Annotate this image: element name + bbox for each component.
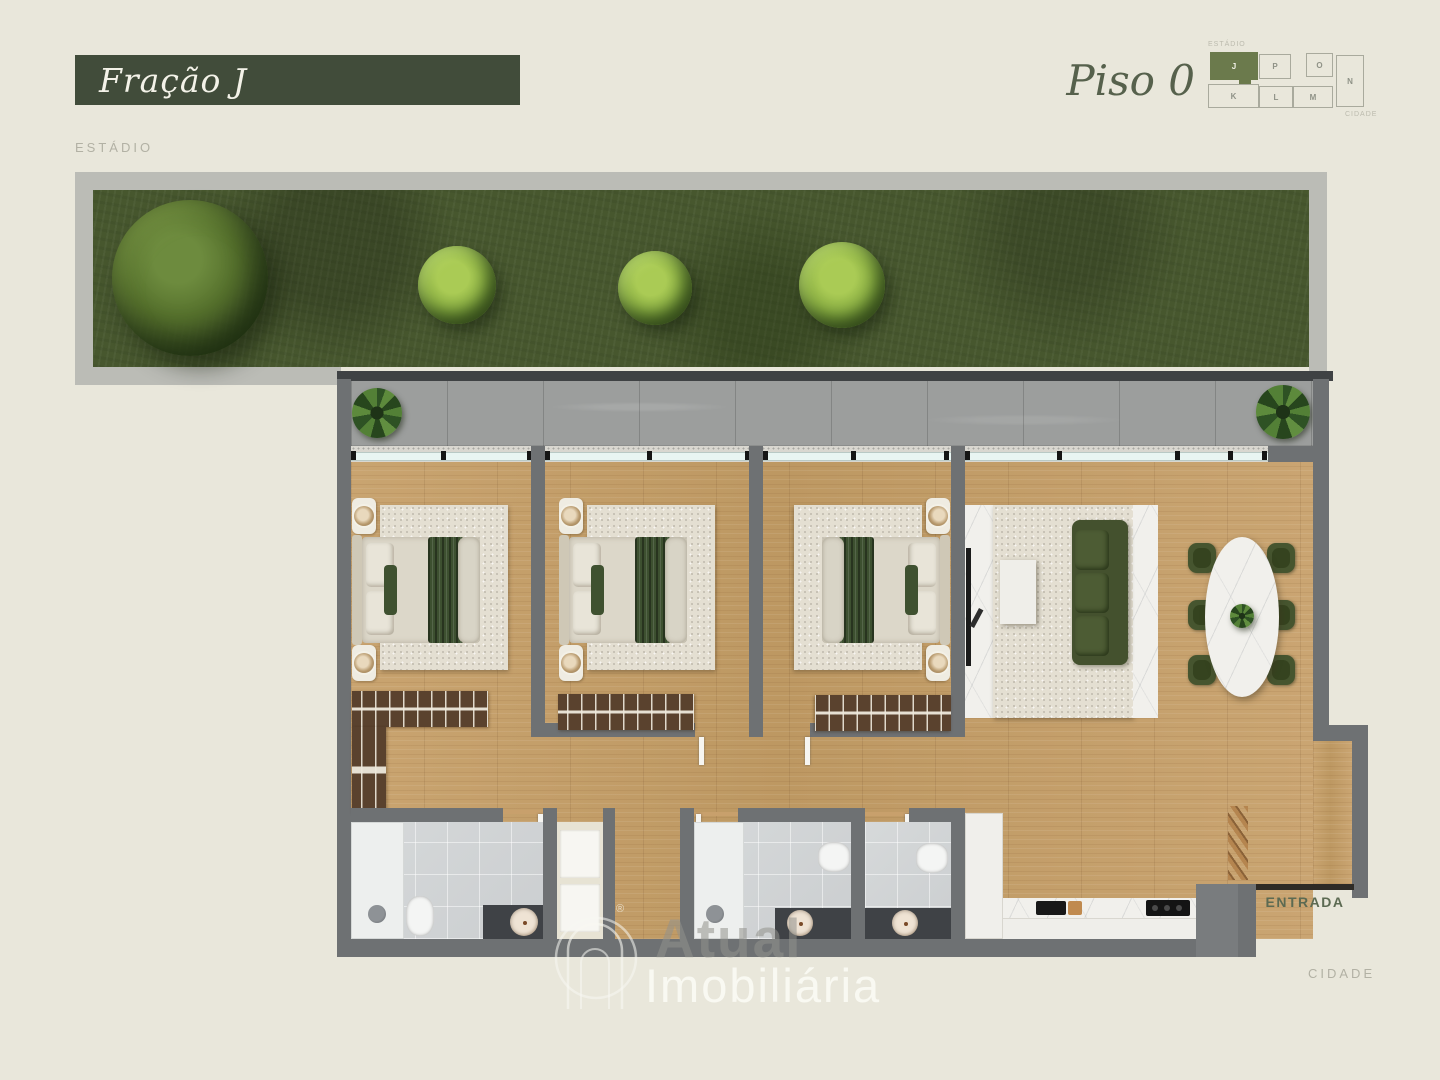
terrace-plant-right [1256, 385, 1310, 439]
bathroom2-top-wall [738, 808, 853, 822]
minimap-unit-m: M [1293, 86, 1333, 108]
floor-title: Piso 0 [1040, 56, 1195, 105]
exterior-wall-left [337, 379, 351, 957]
foot-blanket [665, 537, 687, 643]
foot-blanket [458, 537, 480, 643]
shower-head [368, 905, 386, 923]
bathroom3-right-wall [951, 808, 965, 939]
brand-logo-icon [548, 903, 643, 1011]
burner [1152, 905, 1158, 911]
wall-bedroom3-living [951, 446, 965, 737]
door-track-marker [1262, 451, 1267, 460]
terrace-tiles [351, 381, 1313, 446]
entrance-threshold [1256, 884, 1354, 890]
cooktop [1146, 900, 1190, 916]
bedroom-1 [351, 448, 533, 738]
orientation-label-cidade: CIDADE [1308, 966, 1375, 981]
minimap-cidade-label: CIDADE [1345, 111, 1377, 118]
grass-lawn [93, 190, 1309, 367]
folding-entry-door [1228, 806, 1248, 880]
burner [1176, 905, 1182, 911]
door-track-marker [545, 451, 550, 460]
sofa [1072, 520, 1128, 665]
minimap-unit-p: P [1259, 54, 1291, 79]
wall-step-right [1313, 725, 1368, 741]
accent-pillow [905, 565, 918, 615]
exterior-wall-right [1313, 379, 1329, 725]
toilet [406, 896, 434, 936]
kitchen-side-wall [1196, 884, 1238, 957]
closet-shelf [560, 830, 600, 878]
large-tree [112, 200, 268, 356]
washbasin [892, 910, 918, 936]
garden-frame-bottom [75, 367, 341, 385]
wall-living-window-end [1268, 446, 1313, 462]
table-lamp [928, 653, 948, 673]
registered-mark: ® [616, 903, 624, 915]
bed-headboard [559, 535, 569, 645]
exterior-wall-top [337, 371, 1333, 381]
marble-floor-strip [1133, 505, 1158, 718]
foot-blanket [822, 537, 844, 643]
bathroom3-door-lintel [865, 812, 907, 816]
garden-frame-right [1309, 172, 1327, 371]
accent-pillow [384, 565, 397, 615]
bathroom1-door-lintel [503, 810, 543, 814]
tall-cabinet [965, 813, 1003, 939]
minimap-unit-j: J [1210, 52, 1258, 80]
washbasin [510, 908, 538, 936]
entrance-label: ENTRADA [1252, 894, 1358, 910]
bedroom3-door [805, 737, 810, 765]
wood-floor-entry-notch [1313, 741, 1352, 888]
bed-headboard [940, 535, 950, 645]
wardrobe [558, 694, 694, 730]
table-lamp [561, 506, 581, 526]
burner [1164, 905, 1170, 911]
orientation-label-estadio: ESTÁDIO [75, 140, 153, 155]
bush-2 [618, 251, 692, 325]
door-track-marker [1175, 451, 1180, 460]
toilet [818, 842, 850, 872]
door-track-marker [1228, 451, 1233, 460]
kitchen-cabinets [1003, 918, 1196, 939]
table-lamp [928, 506, 948, 526]
bathroom1-top-wall [351, 808, 503, 822]
minimap-unit-k: K [1208, 84, 1259, 108]
wardrobe-extension [352, 727, 386, 813]
cutting-board [1068, 901, 1082, 915]
minimap-estadio-label: ESTÁDIO [1208, 41, 1246, 48]
kitchen-sink [1036, 901, 1066, 915]
fraction-title: Fração J [99, 61, 247, 100]
toilet [916, 843, 948, 873]
accent-pillow [591, 565, 604, 615]
watermark-brand-type: Imobiliária [645, 958, 881, 1013]
exterior-wall-right-lower [1352, 741, 1368, 898]
wardrobe [352, 691, 488, 727]
table-centerpiece-plant [1230, 604, 1254, 628]
bush-3 [799, 242, 885, 328]
bush-1 [418, 246, 496, 324]
table-lamp [354, 506, 374, 526]
bedroom-3 [769, 448, 951, 738]
terrace-plant-left [352, 388, 402, 438]
bed-headboard [352, 535, 362, 645]
door-track-marker [965, 451, 970, 460]
sofa-cushion [1075, 530, 1109, 570]
garden-frame-top [75, 172, 1327, 190]
minimap-unit-n: N [1336, 55, 1364, 107]
coffee-table [1000, 560, 1036, 624]
wall-bedroom1-bedroom2 [531, 446, 545, 737]
minimap-unit-l: L [1259, 86, 1293, 108]
wardrobe [815, 695, 951, 731]
sofa-cushion [1075, 616, 1109, 656]
minimap-unit-o: O [1306, 53, 1333, 77]
table-lamp [561, 653, 581, 673]
door-track-marker [1057, 451, 1062, 460]
bathroom2-bathroom3-wall [851, 808, 865, 939]
tv-icon [966, 548, 971, 666]
floor-plan-page: { "header": { "fraction_label": "Fração … [0, 0, 1440, 1080]
wall-bedroom2-bedroom3 [749, 446, 763, 737]
sofa-cushion [1075, 573, 1109, 613]
fraction-banner: Fração J [75, 55, 520, 105]
table-lamp [354, 653, 374, 673]
bedroom2-door [699, 737, 704, 765]
door-track-marker [763, 451, 768, 460]
bedroom-2 [558, 448, 740, 738]
garden-frame-left [75, 172, 93, 385]
